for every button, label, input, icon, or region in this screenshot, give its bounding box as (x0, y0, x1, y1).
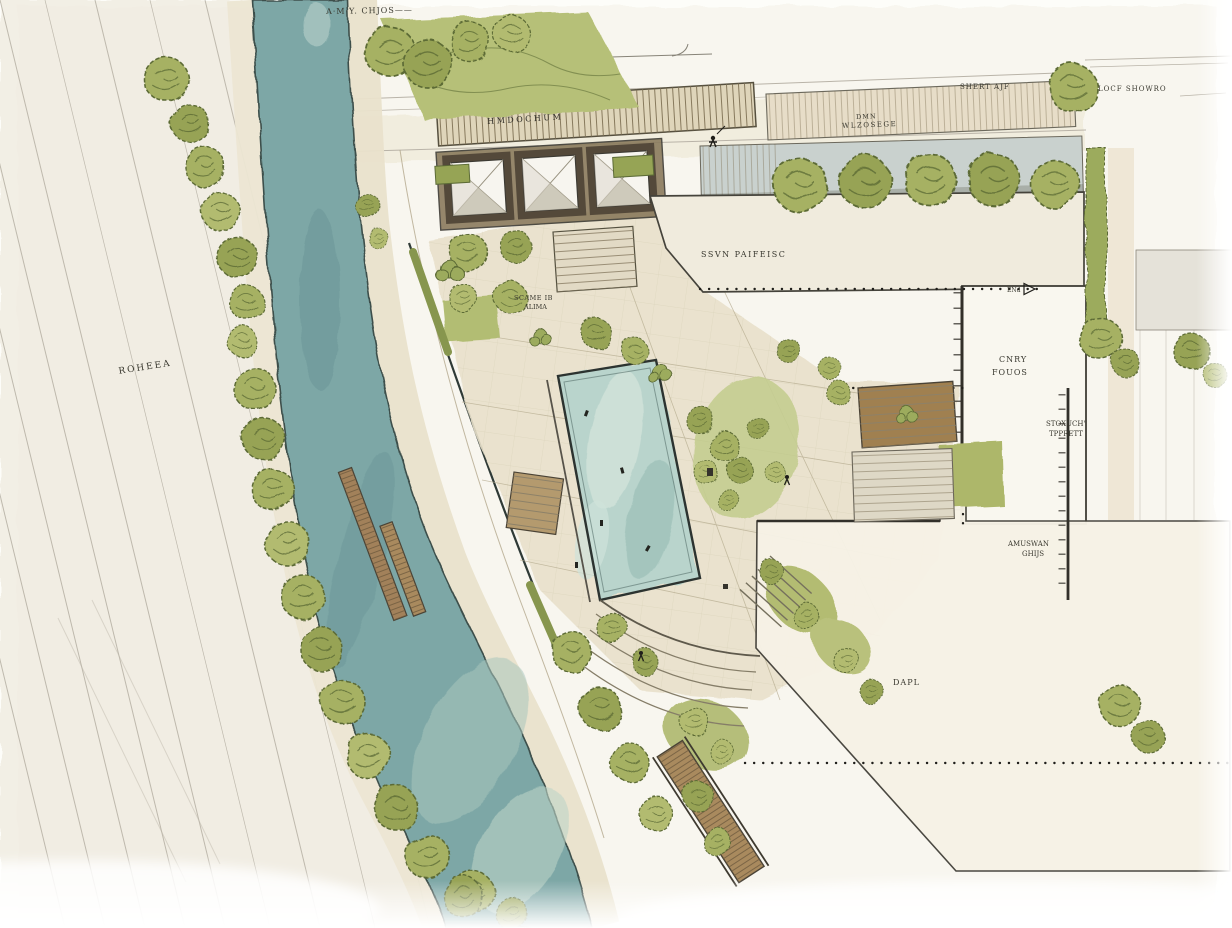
site-plan-canvas: A·M·Y. CHJOS—— HMDOCHUM DMN WLZOSEGE SHE… (0, 0, 1232, 928)
canopy-pyramid-icon (586, 143, 658, 215)
plaza-note-line1: DMN (856, 113, 877, 120)
east-wall-line2: TPPRETT (1049, 431, 1083, 438)
sheet-note-top: A·M·Y. CHJOS—— (326, 6, 413, 16)
east-building-line2: FOUOS (992, 369, 1028, 377)
pool-stairs (506, 472, 563, 534)
dimension-note: ENd (1007, 288, 1020, 294)
street-note-b: LOCF SHOWRO (1098, 86, 1167, 93)
southeast-wall-line1: AMUSWAN (1008, 541, 1049, 548)
canopy-structures (434, 138, 666, 230)
street-note-a: SHERT AJF (960, 84, 1010, 91)
canopy-pyramid-icon (514, 147, 586, 219)
garden-note-line2: ALIMA (524, 304, 547, 311)
east-building-line1: CNRY (999, 356, 1027, 364)
north-steps (553, 226, 637, 291)
southeast-wall-line2: GHIJS (1022, 551, 1044, 558)
south-building-label: DAPL (893, 679, 920, 687)
east-wall-line1: STOXUCH' (1046, 421, 1085, 428)
garden-note-line1: SCAME IB (514, 295, 553, 302)
canopy-pyramid-icon (442, 152, 514, 224)
north-building-label: SSVN PAIFEISC (701, 251, 786, 259)
site-plan-drawing (0, 0, 1232, 928)
